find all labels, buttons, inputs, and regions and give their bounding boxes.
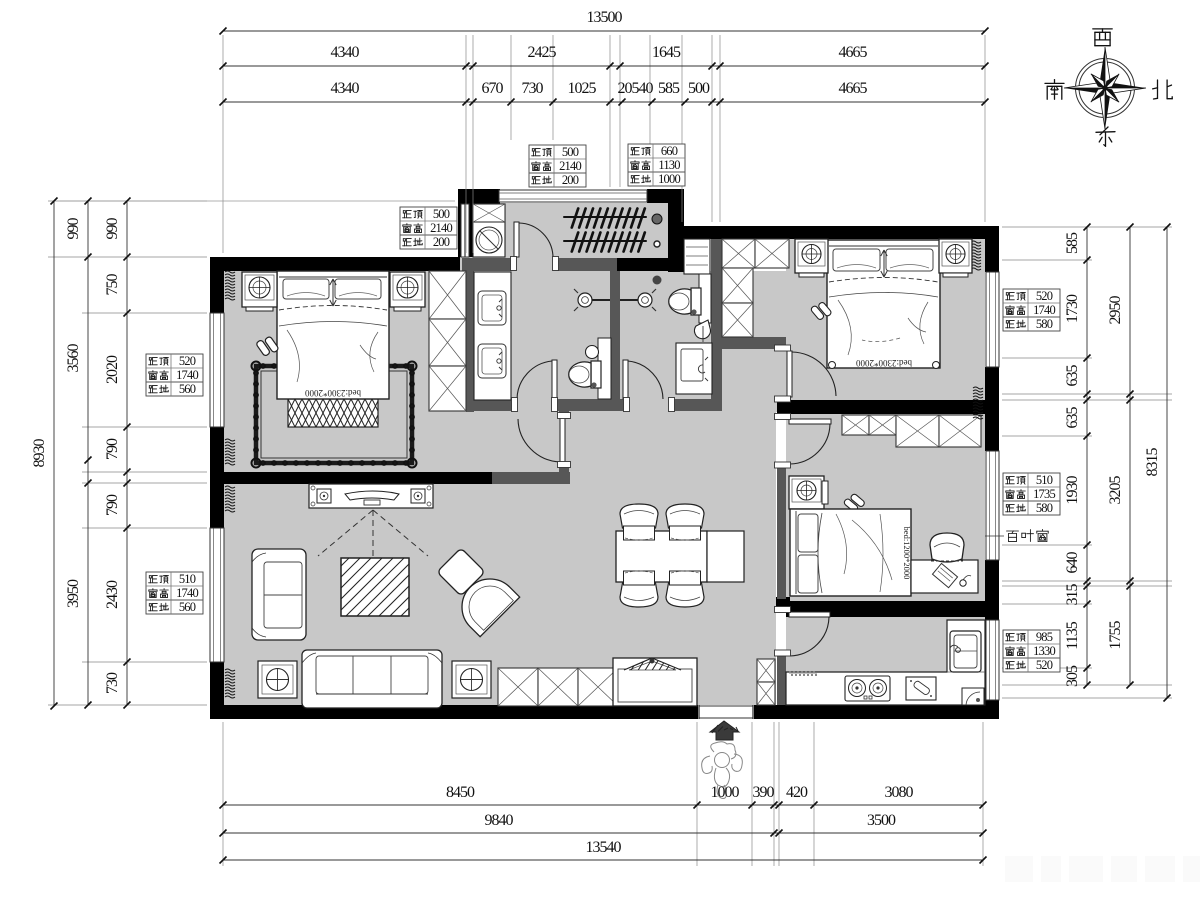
svg-text:4665: 4665 xyxy=(839,80,868,97)
svg-text:1740: 1740 xyxy=(1033,303,1055,317)
svg-text:635: 635 xyxy=(1064,407,1081,429)
svg-text:4340: 4340 xyxy=(331,44,360,61)
svg-text:8930: 8930 xyxy=(31,439,48,468)
svg-text:1755: 1755 xyxy=(1107,621,1124,650)
svg-text:500: 500 xyxy=(562,145,579,159)
svg-text:990: 990 xyxy=(104,218,121,240)
svg-text:3500: 3500 xyxy=(867,812,896,829)
svg-text:3560: 3560 xyxy=(65,344,82,373)
svg-text:390: 390 xyxy=(753,784,775,801)
svg-text:1730: 1730 xyxy=(1064,294,1081,323)
svg-text:510: 510 xyxy=(179,572,196,586)
svg-text:520: 520 xyxy=(1036,658,1053,672)
svg-text:520: 520 xyxy=(1036,289,1053,303)
svg-text:4665: 4665 xyxy=(839,44,868,61)
svg-text:1130: 1130 xyxy=(658,158,680,172)
svg-text:1740: 1740 xyxy=(176,368,198,382)
svg-text:3080: 3080 xyxy=(885,784,914,801)
svg-text:1930: 1930 xyxy=(1064,476,1081,505)
svg-text:3205: 3205 xyxy=(1107,476,1124,505)
svg-text:585: 585 xyxy=(658,80,680,97)
svg-text:3950: 3950 xyxy=(65,579,82,608)
svg-text:730: 730 xyxy=(104,672,121,694)
svg-text:8450: 8450 xyxy=(446,784,475,801)
svg-text:2430: 2430 xyxy=(104,580,121,609)
svg-text:1740: 1740 xyxy=(176,586,198,600)
svg-text:2020: 2020 xyxy=(104,355,121,384)
svg-text:1000: 1000 xyxy=(658,172,680,186)
svg-text:510: 510 xyxy=(1036,473,1053,487)
svg-text:500: 500 xyxy=(688,80,710,97)
svg-text:560: 560 xyxy=(179,600,196,614)
svg-text:990: 990 xyxy=(65,218,82,240)
svg-text:660: 660 xyxy=(661,144,678,158)
svg-text:200: 200 xyxy=(562,173,579,187)
svg-text:1135: 1135 xyxy=(1064,621,1081,649)
svg-text:1735: 1735 xyxy=(1033,487,1055,501)
svg-text:13500: 13500 xyxy=(587,9,623,26)
svg-text:bed:2300*2000: bed:2300*2000 xyxy=(305,388,361,398)
svg-text:790: 790 xyxy=(104,438,121,460)
svg-text:2140: 2140 xyxy=(559,159,581,173)
svg-text:635: 635 xyxy=(1064,365,1081,387)
svg-text:305: 305 xyxy=(1064,665,1081,687)
svg-text:520: 520 xyxy=(179,354,196,368)
svg-text:730: 730 xyxy=(522,80,544,97)
svg-text:585: 585 xyxy=(1064,232,1081,254)
svg-text:9840: 9840 xyxy=(485,812,514,829)
svg-text:200: 200 xyxy=(433,235,450,249)
svg-text:790: 790 xyxy=(104,494,121,516)
svg-text:8315: 8315 xyxy=(1144,448,1161,477)
svg-text:bed:2300*2000: bed:2300*2000 xyxy=(856,358,912,368)
svg-text:985: 985 xyxy=(1036,630,1053,644)
svg-text:4340: 4340 xyxy=(331,80,360,97)
svg-text:670: 670 xyxy=(482,80,504,97)
svg-text:580: 580 xyxy=(1036,501,1053,515)
svg-text:750: 750 xyxy=(104,274,121,296)
svg-text:1330: 1330 xyxy=(1033,644,1055,658)
svg-text:420: 420 xyxy=(786,784,808,801)
svg-text:13540: 13540 xyxy=(586,839,622,856)
svg-text:315: 315 xyxy=(1064,584,1081,606)
svg-text:1025: 1025 xyxy=(568,80,597,97)
svg-text:2950: 2950 xyxy=(1107,296,1124,325)
svg-text:2425: 2425 xyxy=(528,44,557,61)
svg-text:20540: 20540 xyxy=(618,80,654,97)
svg-text:640: 640 xyxy=(1064,552,1081,574)
svg-text:2140: 2140 xyxy=(430,221,452,235)
svg-text:500: 500 xyxy=(433,207,450,221)
svg-text:580: 580 xyxy=(1036,317,1053,331)
svg-text:560: 560 xyxy=(179,382,196,396)
svg-text:1645: 1645 xyxy=(652,44,681,61)
svg-text:1000: 1000 xyxy=(711,784,740,801)
